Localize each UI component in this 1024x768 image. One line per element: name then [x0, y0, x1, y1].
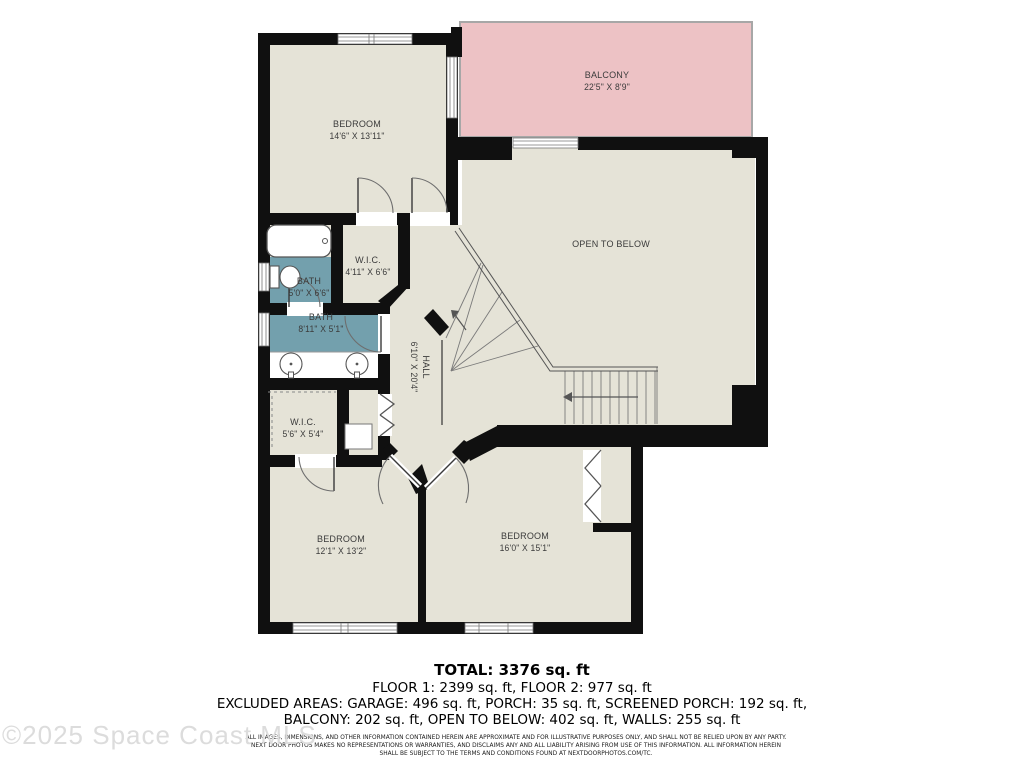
linen-cabinet	[345, 424, 372, 449]
label-wic-top: W.I.C. 4'11" X 6'6"	[345, 255, 390, 279]
tub-faucet	[323, 239, 328, 244]
summary-excluded-1: EXCLUDED AREAS: GARAGE: 496 sq. ft, PORC…	[217, 696, 807, 712]
label-balcony: BALCONY 22'5" X 8'9"	[584, 70, 630, 94]
bathtub	[267, 225, 331, 257]
label-hall: HALL 6'10" X 20'4"	[407, 342, 431, 393]
window-left-2	[259, 313, 269, 346]
disclaimer-line-3: SHALL BE SUBJECT TO THE TERMS AND CONDIT…	[380, 749, 653, 758]
window-top	[338, 34, 412, 44]
label-bedroom-top: BEDROOM 14'6" X 13'11"	[329, 119, 384, 143]
open-to-below-area	[462, 146, 755, 425]
summary-floors: FLOOR 1: 2399 sq. ft, FLOOR 2: 977 sq. f…	[372, 680, 652, 696]
summary-total: TOTAL: 3376 sq. ft	[434, 661, 590, 679]
window-bedroom-top-right	[447, 57, 457, 118]
window-balcony	[513, 138, 578, 148]
floor-plan-drawing	[0, 0, 1024, 768]
floor-plan-page: BEDROOM 14'6" X 13'11" BALCONY 22'5" X 8…	[0, 0, 1024, 768]
window-bottom-right	[465, 623, 533, 633]
summary-excluded-2: BALCONY: 202 sq. ft, OPEN TO BELOW: 402 …	[284, 712, 741, 728]
window-left-1	[259, 263, 269, 291]
window-bottom-left	[293, 623, 397, 633]
label-open-to-below: OPEN TO BELOW	[572, 239, 650, 251]
label-bedroom-right: BEDROOM 16'0" X 15'1"	[500, 531, 551, 555]
label-bath-small: BATH 5'0" X 6'6"	[289, 276, 330, 300]
label-wic-bottom: W.I.C. 5'6" X 5'4"	[283, 417, 324, 441]
label-bedroom-left: BEDROOM 12'1" X 13'2"	[316, 534, 367, 558]
mls-watermark: ©2025 Space Coast MLS	[2, 720, 317, 751]
label-bath-large: BATH 8'11" X 5'1"	[298, 312, 343, 336]
